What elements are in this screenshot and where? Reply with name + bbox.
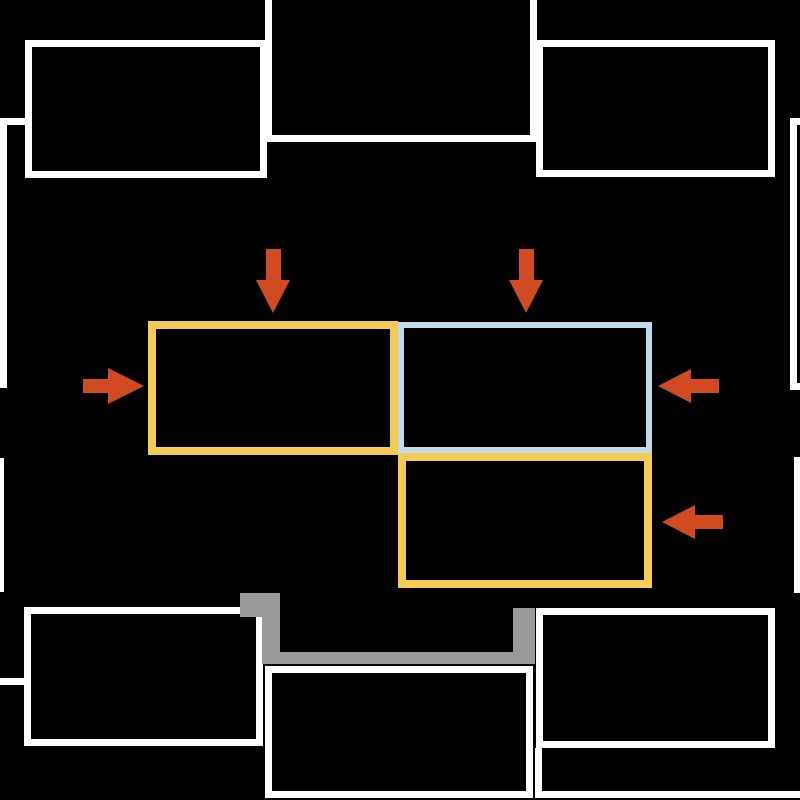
arrow-left-into-blue-shaft (691, 379, 719, 393)
arrow-left-into-yellow-bottom (662, 505, 723, 539)
room-left-upper (0, 118, 7, 388)
arrow-down-into-blue-head-icon (509, 280, 543, 313)
room-bottom-left (24, 607, 263, 746)
wall-connector-top-left (5, 118, 25, 125)
room-top-right (536, 40, 775, 177)
highlight-yellow-bottom-right (398, 453, 652, 588)
arrow-right-into-yellow-top-head-icon (108, 368, 144, 404)
arrow-down-into-blue-shaft (519, 249, 534, 280)
room-left-lower (0, 458, 4, 592)
arrow-left-into-blue-head-icon (658, 369, 691, 403)
room-top-left (25, 40, 267, 178)
wall-stub-bottom-left (0, 678, 24, 685)
wall-bottom-right-horizontal (535, 791, 800, 798)
highlight-blue-top-right (398, 322, 652, 453)
arrow-left-into-yellow-bottom-shaft (695, 515, 723, 529)
room-right-lower (794, 457, 800, 593)
pipe-horizontal (264, 652, 535, 664)
arrow-left-into-yellow-bottom-head-icon (662, 505, 695, 539)
arrow-down-into-blue (509, 249, 544, 313)
arrow-right-into-yellow-top-shaft (83, 379, 108, 393)
pipe-right-vertical (513, 608, 535, 664)
arrow-down-into-yellow-top-head-icon (256, 280, 290, 313)
map-canvas (0, 0, 800, 800)
room-right-upper (790, 118, 800, 390)
arrow-right-into-yellow-top (83, 368, 144, 404)
room-top-center (265, 0, 537, 142)
room-bottom-center (265, 666, 533, 798)
highlight-yellow-top-left (148, 321, 398, 455)
arrow-left-into-blue (658, 369, 719, 403)
pipe-block (240, 593, 280, 617)
room-bottom-right (536, 608, 775, 748)
arrow-down-into-yellow-top (256, 249, 291, 313)
arrow-down-into-yellow-top-shaft (266, 249, 281, 280)
